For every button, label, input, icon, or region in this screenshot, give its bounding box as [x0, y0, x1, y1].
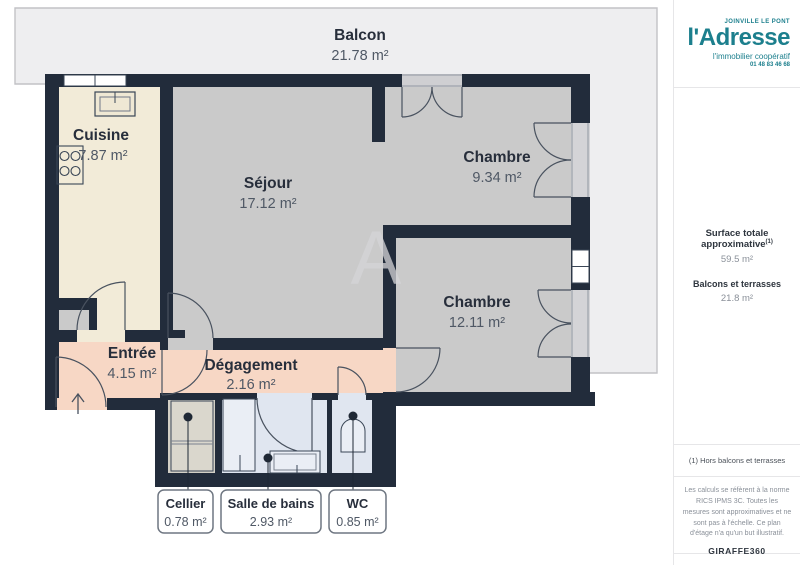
footnote: (1) Hors balcons et terrasses	[674, 445, 800, 477]
brand-wordmark: l'Adresse	[687, 26, 790, 50]
legal-block: Les calculs se réfèrent à la norme RICS …	[674, 477, 800, 554]
sidebar: JOINVILLE LE PONT l'Adresse l'immobilier…	[673, 0, 800, 565]
shower	[223, 399, 255, 471]
kitchen-sink	[95, 92, 135, 116]
svg-text:Dégagement: Dégagement	[204, 357, 297, 374]
floorplan: A Balcon 21.78 m² Cuisine 7.87 m² Séjour…	[0, 0, 660, 565]
bedroom-window	[572, 250, 589, 283]
svg-text:7.87 m²: 7.87 m²	[78, 148, 127, 164]
svg-text:0.85 m²: 0.85 m²	[336, 515, 378, 529]
brand-tagline: l'immobilier coopératif	[713, 52, 790, 61]
giraffe360-logo: GIRAFFE360	[682, 546, 792, 556]
svg-text:Cellier: Cellier	[166, 496, 206, 511]
svg-text:12.11 m²: 12.11 m²	[449, 315, 505, 331]
floorplan-page: A Balcon 21.78 m² Cuisine 7.87 m² Séjour…	[0, 0, 800, 565]
svg-text:2.93 m²: 2.93 m²	[250, 515, 292, 529]
surface-summary: Surface totale approximative(1) 59.5 m² …	[674, 88, 800, 445]
callout-cellier: Cellier 0.78 m²	[158, 490, 213, 533]
svg-text:WC: WC	[347, 496, 369, 511]
svg-text:0.78 m²: 0.78 m²	[164, 515, 206, 529]
balcony-title: Balcons et terrasses	[693, 279, 781, 289]
brand-block: JOINVILLE LE PONT l'Adresse l'immobilier…	[674, 0, 800, 88]
svg-text:Balcon: Balcon	[334, 27, 386, 44]
surface-value: 59.5 m²	[721, 254, 753, 265]
callouts: Cellier 0.78 m² Salle de bains 2.93 m² W…	[158, 490, 386, 533]
watermark-a: A	[351, 216, 402, 301]
callout-salle-de-bains: Salle de bains 2.93 m²	[221, 490, 321, 533]
svg-text:9.34 m²: 9.34 m²	[472, 170, 521, 186]
brand-phone: 01 48 83 46 68	[750, 62, 790, 68]
bathroom-sink	[270, 451, 320, 473]
surface-title: Surface totale approximative(1)	[680, 228, 794, 250]
svg-text:4.15 m²: 4.15 m²	[107, 366, 156, 382]
kitchen-window	[64, 75, 126, 86]
svg-text:Chambre: Chambre	[443, 294, 511, 311]
svg-text:Séjour: Séjour	[244, 175, 292, 192]
balcony-value: 21.8 m²	[721, 293, 753, 304]
svg-text:Salle de bains: Salle de bains	[228, 496, 315, 511]
svg-text:Entrée: Entrée	[108, 345, 157, 362]
svg-text:21.78 m²: 21.78 m²	[331, 48, 388, 64]
room-floors	[59, 87, 571, 475]
legal-text: Les calculs se réfèrent à la norme RICS …	[682, 486, 792, 540]
svg-text:Cuisine: Cuisine	[73, 127, 129, 144]
surface-footnote-ref: (1)	[766, 239, 773, 245]
svg-text:Chambre: Chambre	[463, 149, 531, 166]
svg-text:2.16 m²: 2.16 m²	[226, 377, 275, 393]
washer	[171, 401, 213, 471]
svg-text:17.12 m²: 17.12 m²	[239, 196, 296, 212]
callout-wc: WC 0.85 m²	[329, 490, 386, 533]
